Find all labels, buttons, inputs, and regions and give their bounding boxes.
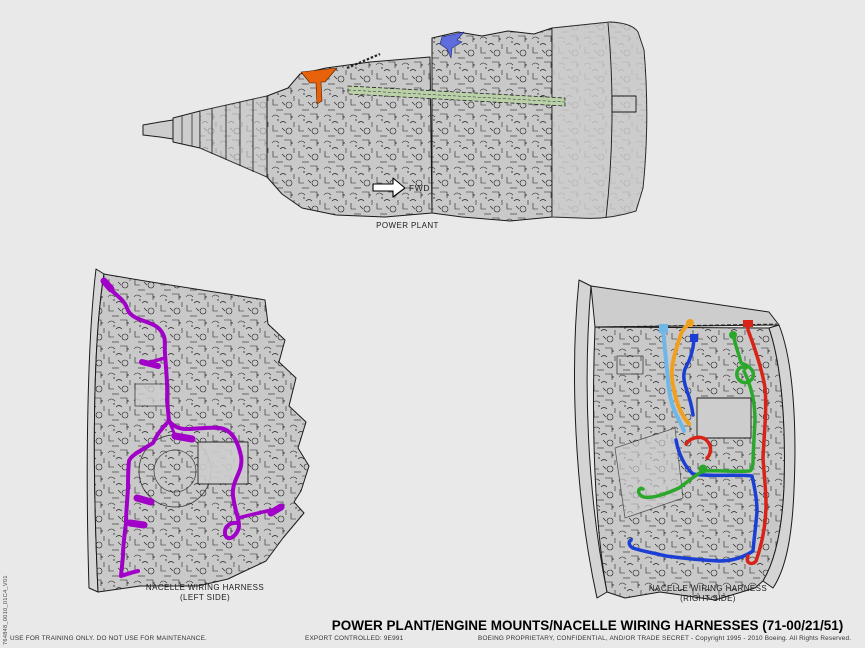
right-caption-line2: (RIGHT SIDE) bbox=[602, 594, 814, 604]
fan-hub-section bbox=[432, 28, 552, 221]
figure-id: 764848_0010_01C4_V01 bbox=[3, 575, 9, 645]
right-caption-line1: NACELLE WIRING HARNESS bbox=[602, 584, 814, 594]
manual-page: FWD POWER PLANT bbox=[0, 0, 865, 648]
right-nacelle-illustration bbox=[565, 268, 811, 604]
left-nacelle-caption: NACELLE WIRING HARNESS (LEFT SIDE) bbox=[100, 583, 310, 603]
connector-sky-blue bbox=[659, 324, 668, 333]
page-title: POWER PLANT/ENGINE MOUNTS/NACELLE WIRING… bbox=[330, 618, 845, 633]
left-nacelle-body bbox=[94, 274, 309, 592]
connector-red bbox=[743, 320, 753, 327]
exhaust-plug bbox=[143, 120, 173, 139]
connector-blue bbox=[690, 334, 698, 342]
power-plant-caption: POWER PLANT bbox=[330, 221, 485, 231]
export-notice: EXPORT CONTROLLED: 9E991 bbox=[305, 635, 403, 642]
connector-green-top bbox=[729, 331, 737, 339]
proprietary-notice: BOEING PROPRIETARY, CONFIDENTIAL, AND/OR… bbox=[478, 635, 851, 642]
left-caption-line1: NACELLE WIRING HARNESS bbox=[100, 583, 310, 593]
engine-core bbox=[267, 57, 432, 217]
fwd-label: FWD bbox=[409, 183, 430, 193]
right-nacelle-caption: NACELLE WIRING HARNESS (RIGHT SIDE) bbox=[602, 584, 814, 604]
left-nacelle-illustration bbox=[80, 266, 315, 598]
connector-green-mid bbox=[699, 465, 708, 474]
training-notice: USE FOR TRAINING ONLY. DO NOT USE FOR MA… bbox=[10, 635, 207, 642]
connector-orange bbox=[686, 319, 694, 327]
tail-cone bbox=[173, 111, 200, 148]
left-caption-line2: (LEFT SIDE) bbox=[100, 593, 310, 603]
power-plant-illustration bbox=[140, 8, 670, 228]
